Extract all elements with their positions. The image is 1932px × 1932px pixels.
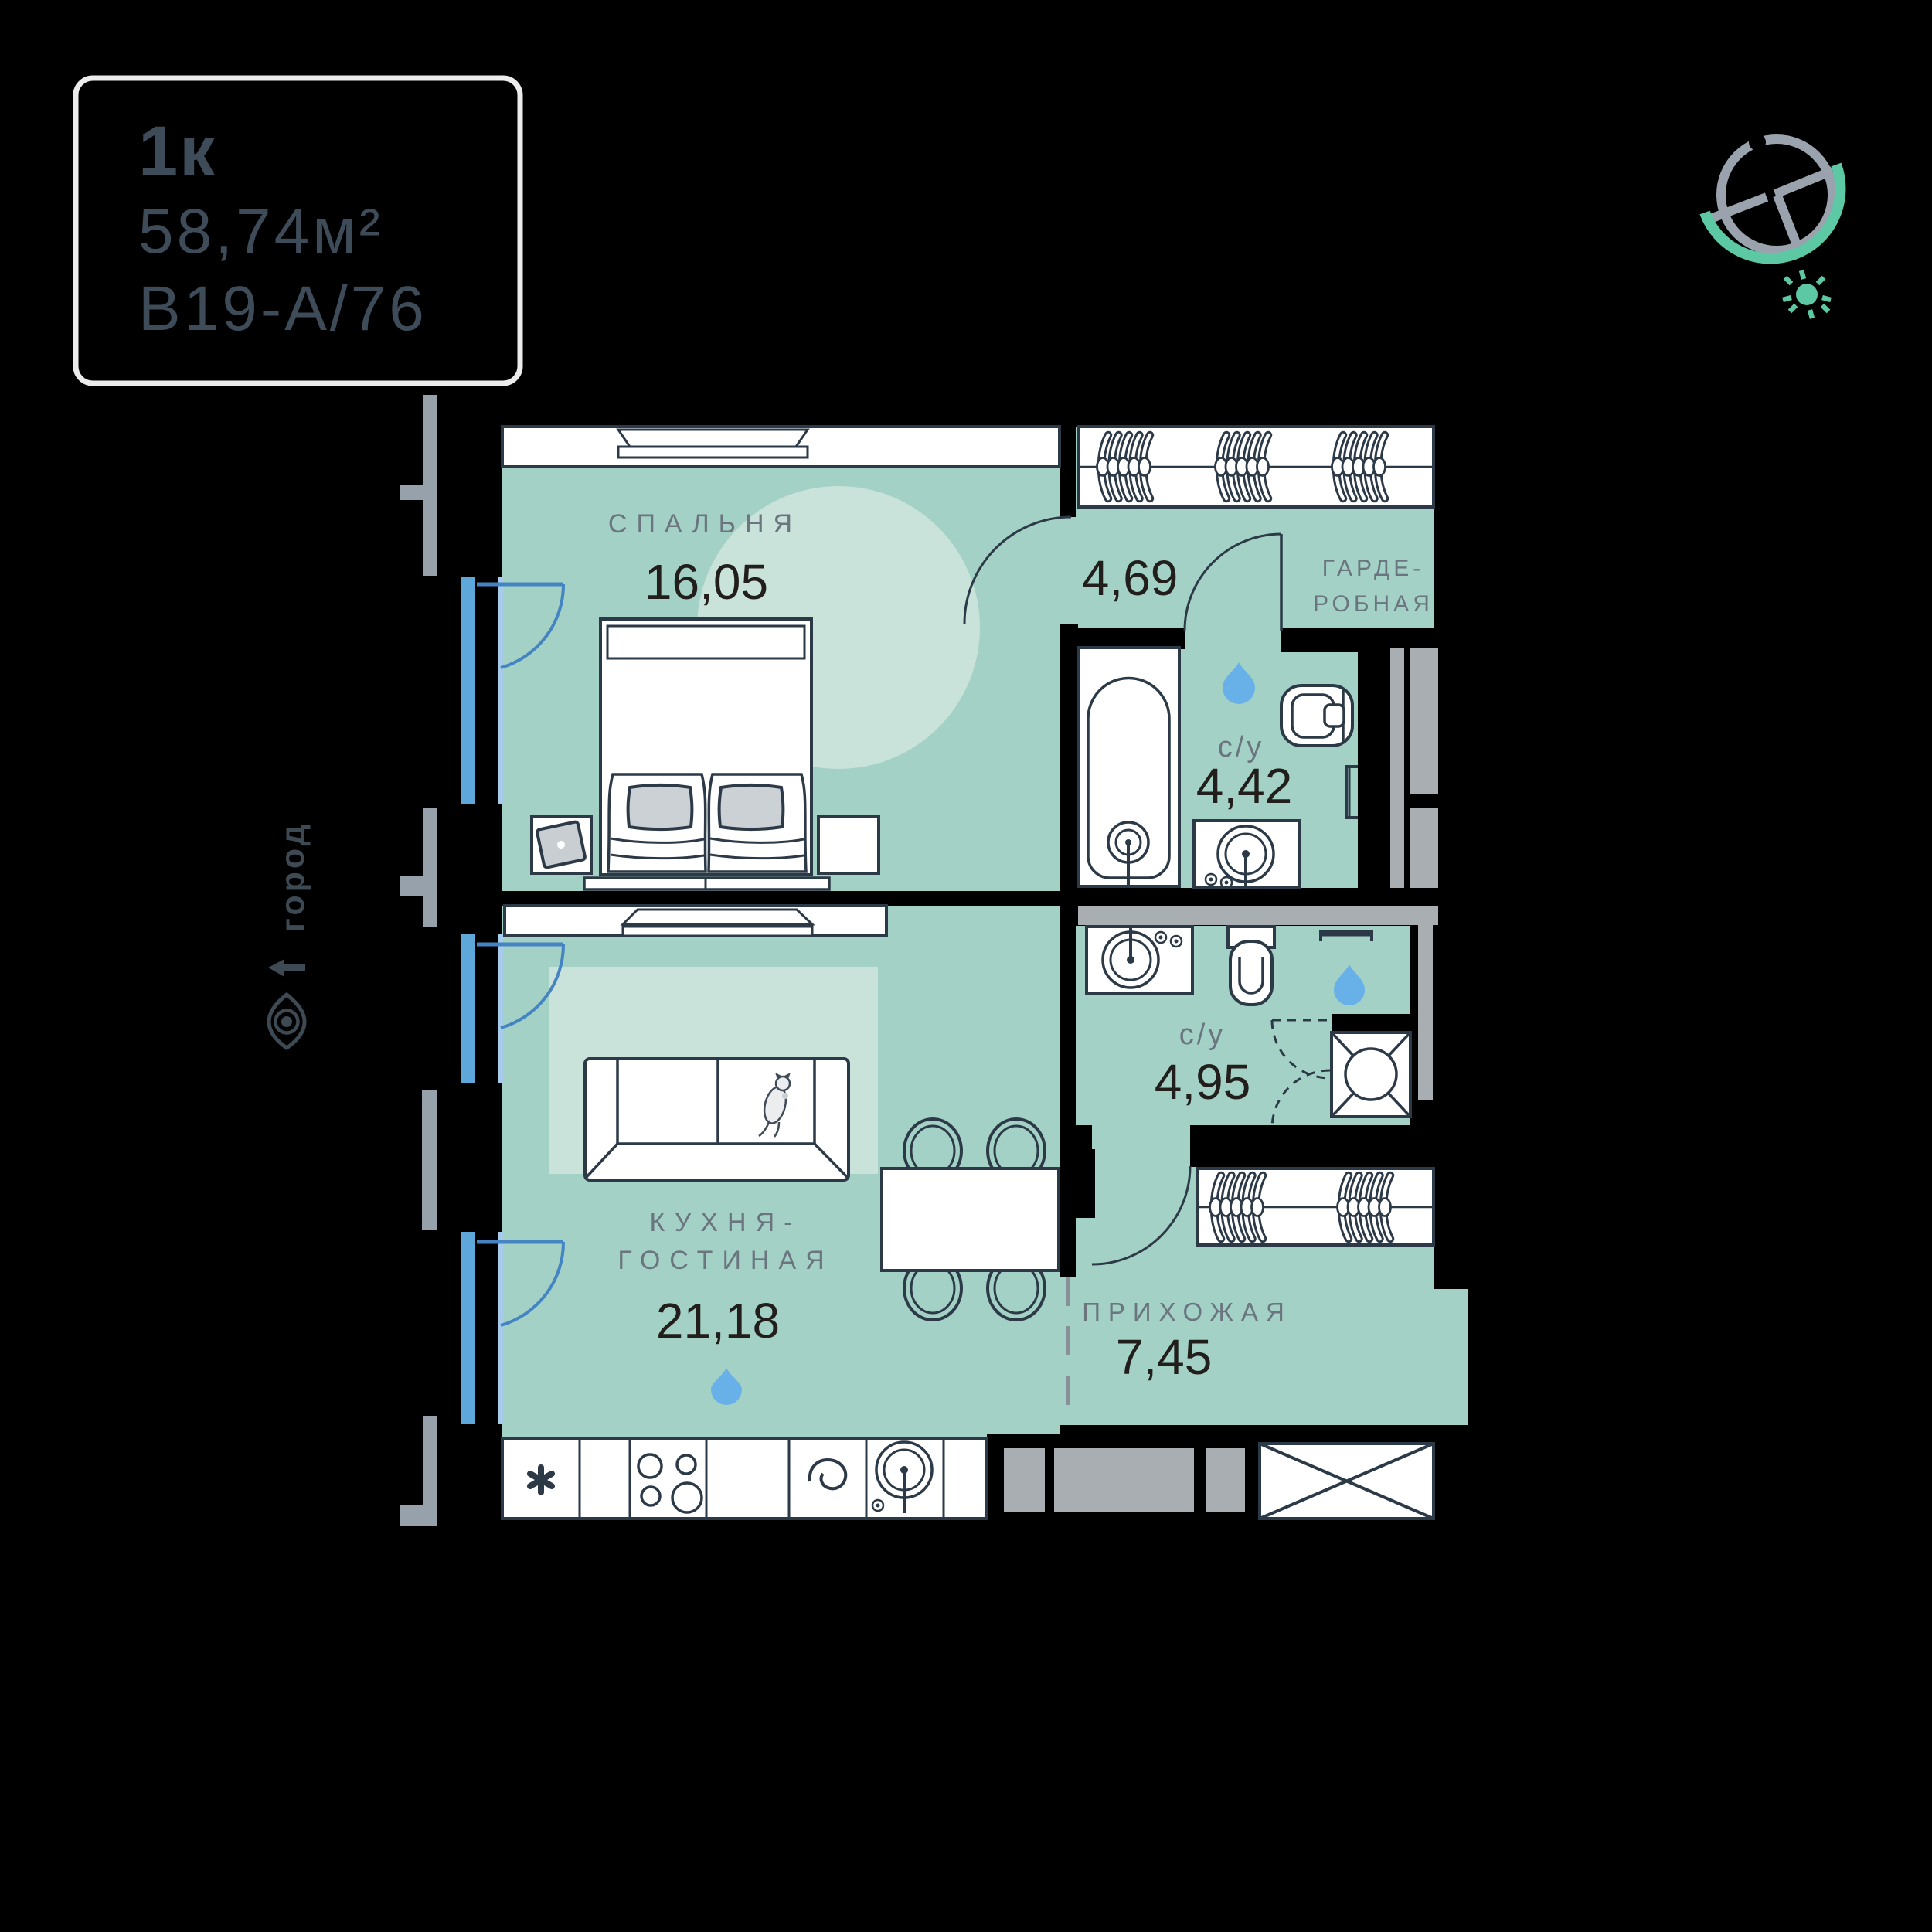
svg-text:1к: 1к bbox=[138, 112, 216, 191]
svg-text:В19-А/76: В19-А/76 bbox=[138, 274, 427, 344]
svg-text:город: город bbox=[274, 821, 311, 932]
svg-text:4,69: 4,69 bbox=[1082, 550, 1179, 606]
svg-text:ГАРДЕ-: ГАРДЕ- bbox=[1322, 556, 1425, 581]
svg-text:СПАЛЬНЯ: СПАЛЬНЯ bbox=[608, 509, 801, 539]
svg-text:ПРИХОЖАЯ: ПРИХОЖАЯ bbox=[1082, 1298, 1292, 1326]
svg-text:58,74м²: 58,74м² bbox=[138, 196, 383, 267]
svg-text:4,42: 4,42 bbox=[1196, 758, 1293, 814]
svg-text:РОБНАЯ: РОБНАЯ bbox=[1313, 591, 1434, 617]
svg-text:4,95: 4,95 bbox=[1155, 1054, 1251, 1110]
svg-text:КУХНЯ-: КУХНЯ- bbox=[650, 1208, 802, 1237]
svg-text:ГОСТИНАЯ: ГОСТИНАЯ bbox=[617, 1246, 833, 1275]
svg-text:7,45: 7,45 bbox=[1116, 1329, 1213, 1385]
svg-text:с/у: с/у bbox=[1179, 1019, 1226, 1051]
svg-text:16,05: 16,05 bbox=[645, 554, 768, 610]
svg-text:21,18: 21,18 bbox=[656, 1293, 780, 1349]
